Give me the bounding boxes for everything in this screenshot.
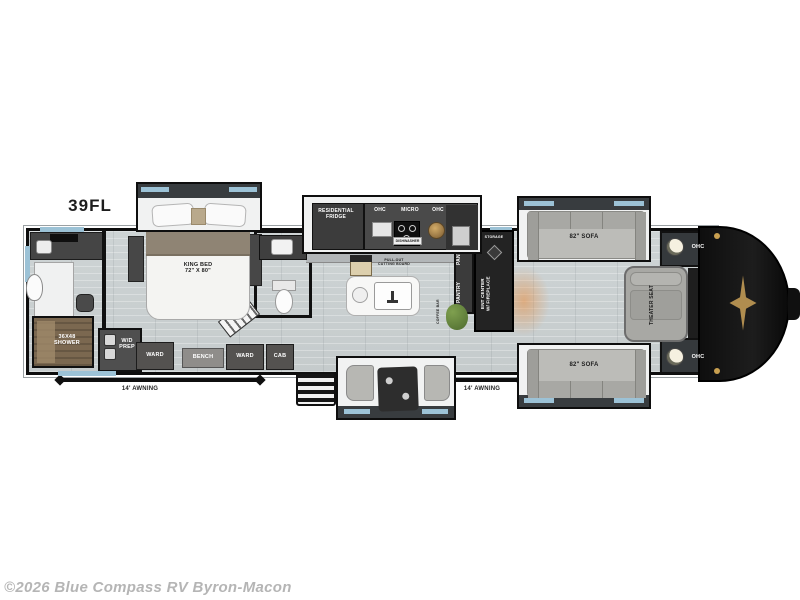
- ohc-label: OHC: [368, 208, 392, 214]
- awning-bar-end: [54, 374, 65, 385]
- bedside-cabinet: [128, 236, 144, 282]
- ent-center-label: ENT CENTER W/ FIREPLACE: [480, 262, 508, 326]
- pillow: [203, 203, 246, 228]
- headboard-cushion: [191, 208, 206, 225]
- sofa-label: 82" SOFA: [540, 234, 628, 241]
- interior-wall: [102, 230, 106, 328]
- awning-label-left: 14' AWNING: [110, 386, 170, 393]
- ohc-label: OHC: [426, 208, 450, 214]
- bath-sink: [36, 240, 52, 254]
- fridge-label: RESIDENTIAL FRIDGE: [312, 209, 360, 221]
- window-strip: [524, 398, 554, 403]
- wardrobe-label: WARD: [136, 352, 174, 358]
- dinette-chair: [424, 365, 450, 401]
- sofa-label: 82" SOFA: [540, 362, 628, 369]
- window-strip: [422, 409, 448, 414]
- ohc-rear-label: OHC: [686, 354, 710, 360]
- table-decor: [402, 393, 409, 400]
- shower-label: 36X48 SHOWER: [44, 334, 90, 347]
- sofa-back: [539, 212, 635, 229]
- cap-emblem: [728, 274, 758, 332]
- dishwasher-label: DISHWASHER: [393, 239, 422, 243]
- island-round-basin: [352, 287, 368, 303]
- cutting-board-rail: [350, 255, 372, 262]
- cap-accent-dot: [714, 368, 720, 374]
- model-number: 39FL: [58, 196, 122, 216]
- cabinet-label: CAB: [266, 353, 294, 359]
- window-strip: [229, 187, 257, 192]
- kitchen-small-appliance: [452, 226, 470, 246]
- sofa-armrest: [528, 212, 539, 260]
- sofa-back: [539, 381, 635, 398]
- hitch-tab: [788, 288, 800, 320]
- burner: [398, 225, 405, 232]
- wardrobe-label: WARD: [226, 353, 264, 359]
- bench-label: BENCH: [182, 354, 224, 360]
- awning-bar: [60, 378, 260, 382]
- lamp: [666, 348, 684, 366]
- island-faucet-base: [387, 300, 398, 303]
- sofa-slideout-bottom: [517, 343, 651, 409]
- sofa-slideout-top: [517, 196, 651, 262]
- window-strip: [524, 201, 554, 206]
- window-strip: [344, 409, 370, 414]
- window-strip: [614, 201, 644, 206]
- dealer-watermark: ©2026 Blue Compass RV Byron-Macon: [4, 579, 404, 597]
- wd-prep-label: W/D PREP: [114, 338, 140, 351]
- cap-accent-dot: [714, 233, 720, 239]
- round-sink: [428, 222, 445, 239]
- coffee-bar-label: COFFEE BAR: [436, 295, 446, 329]
- king-bed-label: KING BED 72" X 80": [156, 262, 240, 275]
- slide-wall: [138, 184, 260, 198]
- window-strip: [614, 398, 644, 403]
- ohc-rear-label: OHC: [686, 244, 710, 250]
- table-decor: [386, 377, 393, 384]
- floorplan-image: 39FL 36X48 SHOWER W/D PREP KING BED 72" …: [0, 0, 800, 600]
- sofa: [527, 349, 645, 397]
- burner: [409, 225, 416, 232]
- window-strip: [40, 227, 84, 232]
- toilet: [26, 274, 43, 301]
- mid-bath-sink: [271, 239, 293, 255]
- cutting-board-label: PULL-OUT CUTTING BOARD: [372, 258, 416, 266]
- window-strip: [141, 187, 169, 192]
- dinette-chair: [346, 365, 374, 401]
- sofa-armrest: [635, 212, 646, 260]
- awning-label-right: 14' AWNING: [452, 386, 512, 393]
- lamp: [666, 238, 684, 256]
- entry-steps: [296, 372, 336, 406]
- rear-tv: [688, 268, 698, 338]
- window-strip: [58, 371, 116, 376]
- bath-tv: [50, 234, 78, 242]
- theater-seat-label: THEATER SEAT: [650, 274, 662, 336]
- pantry-label: PANTRY: [457, 274, 471, 310]
- bedroom-slideout: [136, 182, 262, 232]
- pillow: [151, 203, 194, 228]
- sofa-armrest: [635, 350, 646, 398]
- vanity-stool: [76, 294, 94, 312]
- dinette-table: [377, 366, 419, 411]
- dishwasher-drawer: [372, 222, 392, 237]
- bed-blanket: [146, 230, 250, 256]
- sofa-armrest: [528, 350, 539, 398]
- dinette-slideout: [336, 356, 456, 420]
- micro-label: MICRO: [394, 208, 426, 214]
- awning-bar-end: [254, 374, 265, 385]
- slide-wall: [519, 198, 649, 210]
- mid-bath-toilet: [275, 289, 293, 314]
